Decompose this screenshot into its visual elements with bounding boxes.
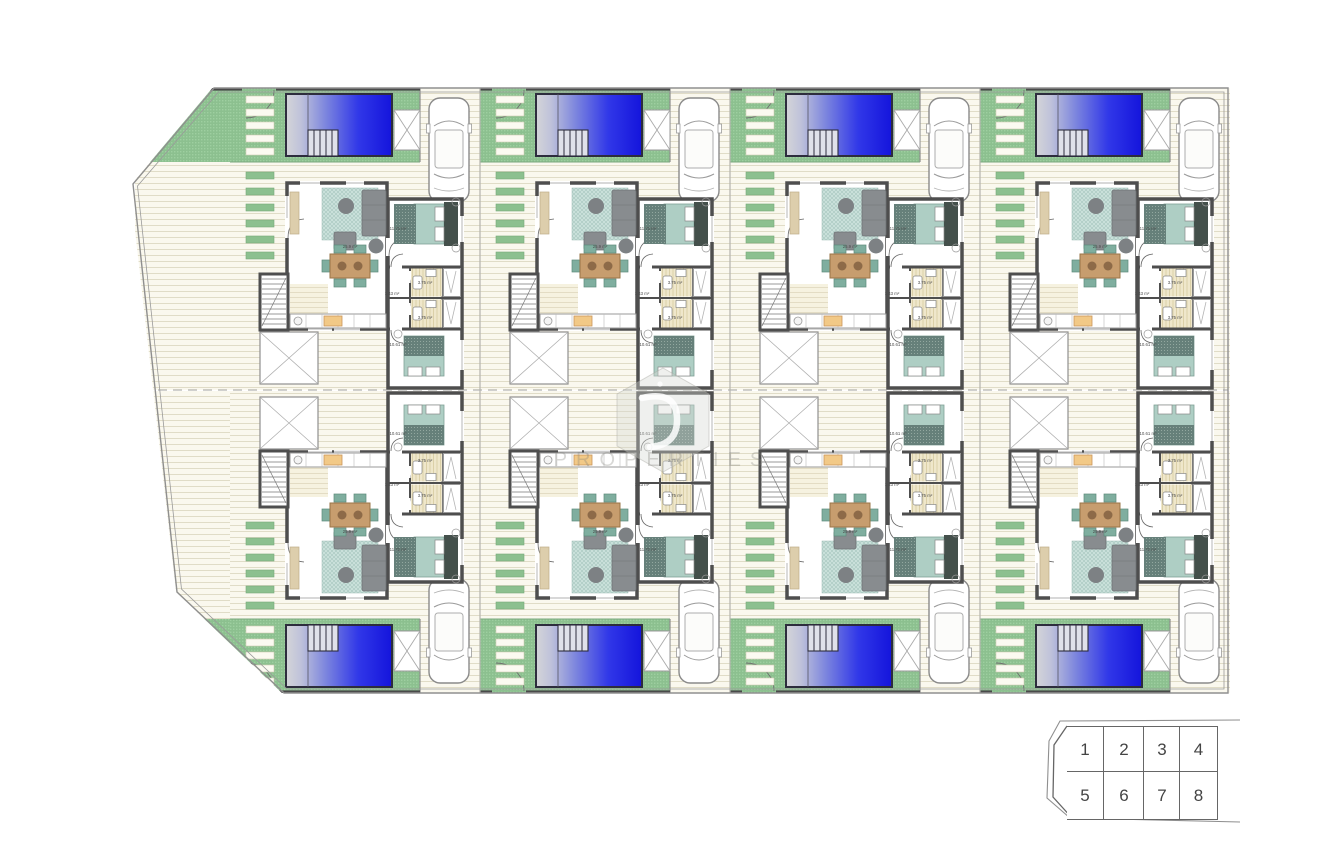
pillow: [426, 405, 440, 414]
pillow: [1185, 560, 1194, 574]
pillow: [1176, 367, 1190, 376]
room-label-hall: 1.43 m²: [1135, 482, 1150, 487]
plot-villa-7: 25.9 m²11.71 m²10.61 m²3.75 m²3.75 m²1.4…: [730, 391, 980, 693]
pool-gate-icon: [644, 631, 670, 671]
room-label-hall: 1.43 m²: [385, 291, 400, 296]
room-label-bathroom_1: 3.75 m²: [418, 493, 433, 498]
room-label-living: 25.9 m²: [1093, 244, 1108, 249]
room-label-bedroom_1: 11.71 m²: [1140, 547, 1157, 552]
room-label-bedroom_2: 10.61 m²: [390, 431, 408, 436]
key-plan-cell-3: 3: [1143, 726, 1181, 773]
key-plan-cell-number: 3: [1157, 740, 1166, 760]
key-plan-cell-number: 5: [1080, 786, 1089, 806]
headboard: [694, 202, 708, 246]
stove: [824, 455, 842, 465]
pillow: [435, 560, 444, 574]
blanket: [904, 336, 944, 356]
bench: [1040, 192, 1049, 234]
bench: [290, 547, 299, 589]
sink: [544, 456, 552, 464]
pool-gate-icon: [394, 631, 420, 671]
key-plan-cell-number: 4: [1194, 740, 1203, 760]
side-table: [619, 528, 634, 543]
room-label-bathroom_2: 3.75 m²: [418, 315, 433, 320]
bathroom-1: [1161, 485, 1211, 513]
pillow: [408, 367, 422, 376]
bathroom-2: [411, 300, 461, 328]
room-label-bathroom_2: 3.75 m²: [668, 458, 683, 463]
pool: [536, 94, 642, 156]
bath-sink: [426, 301, 436, 308]
key-plan-cell-6: 6: [1103, 771, 1145, 820]
pillow: [908, 405, 922, 414]
bath-sink: [926, 474, 936, 481]
blanket: [894, 204, 916, 244]
blanket: [394, 204, 416, 244]
headboard: [944, 535, 958, 579]
key-plan: 12345678: [1046, 716, 1246, 828]
pillow: [935, 207, 944, 221]
sink: [794, 456, 802, 464]
room-label-bathroom_2: 3.75 m²: [1168, 315, 1183, 320]
sink: [294, 317, 302, 325]
dining-table: [1080, 254, 1120, 278]
bedroom-1: [394, 529, 460, 583]
car-icon: [677, 579, 722, 683]
pool-gate-icon: [894, 631, 920, 671]
room-label-bedroom_2: 10.61 m²: [640, 342, 658, 347]
key-plan-cell-1: 1: [1067, 726, 1104, 773]
bath-sink: [926, 270, 936, 277]
corner-plot-ground: [135, 391, 230, 693]
car-icon: [927, 98, 972, 202]
pillow: [1158, 367, 1172, 376]
blanket: [644, 204, 666, 244]
blanket: [654, 425, 694, 445]
bath-sink: [926, 301, 936, 308]
bedroom-1: [644, 198, 710, 252]
dining-table: [580, 503, 620, 527]
bench: [1040, 547, 1049, 589]
car-icon: [427, 98, 472, 202]
pillow: [908, 367, 922, 376]
sofa: [1112, 545, 1136, 591]
stove: [1074, 455, 1092, 465]
blanket: [1154, 425, 1194, 445]
bathroom-1: [661, 485, 711, 513]
pool: [786, 94, 892, 156]
blanket: [1144, 204, 1166, 244]
blanket: [894, 537, 916, 577]
room-label-bathroom_1: 3.75 m²: [668, 280, 683, 285]
headboard: [694, 535, 708, 579]
room-label-hall: 1.43 m²: [385, 482, 400, 487]
blanket: [1154, 336, 1194, 356]
dining-table: [580, 254, 620, 278]
room-label-bedroom_2: 10.61 m²: [390, 342, 408, 347]
blanket: [404, 336, 444, 356]
bath-sink: [426, 474, 436, 481]
key-plan-cell-number: 6: [1119, 786, 1128, 806]
pool: [1036, 625, 1142, 687]
key-plan-cell-number: 1: [1080, 740, 1089, 760]
room-label-bathroom_1: 3.75 m²: [918, 280, 933, 285]
site-plan-canvas: 25.9 m²11.71 m²10.61 m²3.75 m²3.75 m²1.4…: [0, 0, 1320, 859]
pool-gate-icon: [394, 110, 420, 150]
room-label-hall: 1.43 m²: [1135, 291, 1150, 296]
stove: [324, 455, 342, 465]
room-label-living: 25.9 m²: [1093, 529, 1108, 534]
room-label-living: 25.9 m²: [593, 529, 608, 534]
room-label-bathroom_1: 3.75 m²: [668, 493, 683, 498]
key-plan-cell-number: 7: [1157, 786, 1166, 806]
sofa: [612, 545, 636, 591]
pillow: [676, 367, 690, 376]
room-label-bedroom_2: 10.61 m²: [890, 431, 908, 436]
pillow: [658, 367, 672, 376]
pool: [536, 625, 642, 687]
sink: [1044, 456, 1052, 464]
room-label-bedroom_1: 11.71 m²: [890, 226, 907, 231]
bedroom-1: [394, 198, 460, 252]
plot-villa-1: 25.9 m²11.71 m²10.61 m²3.75 m²3.75 m²1.4…: [230, 88, 480, 390]
room-label-bedroom_1: 11.71 m²: [640, 547, 657, 552]
room-label-living: 25.9 m²: [843, 244, 858, 249]
room-label-bathroom_1: 3.75 m²: [418, 280, 433, 285]
room-label-bedroom_2: 10.61 m²: [890, 342, 908, 347]
room-label-bedroom_1: 11.71 m²: [890, 547, 907, 552]
pillow: [935, 560, 944, 574]
room-label-bedroom_1: 11.71 m²: [1140, 226, 1157, 231]
pool-gate-icon: [1144, 110, 1170, 150]
pillow: [435, 227, 444, 241]
room-label-hall: 1.43 m²: [885, 482, 900, 487]
dining-table: [330, 503, 370, 527]
stove: [824, 316, 842, 326]
pillow: [435, 540, 444, 554]
corner-plot-ground: [135, 88, 230, 390]
dining-table: [830, 503, 870, 527]
pillow: [926, 405, 940, 414]
stove: [1074, 316, 1092, 326]
sofa: [862, 545, 886, 591]
side-table: [369, 239, 384, 254]
sink: [544, 317, 552, 325]
sink: [794, 317, 802, 325]
bath-sink: [676, 505, 686, 512]
pillow: [685, 560, 694, 574]
bath-sink: [676, 270, 686, 277]
room-label-bathroom_2: 3.75 m²: [668, 315, 683, 320]
blanket: [394, 537, 416, 577]
side-table: [869, 239, 884, 254]
bench: [290, 192, 299, 234]
key-plan-cell-4: 4: [1179, 726, 1218, 773]
side-table: [869, 528, 884, 543]
headboard: [444, 535, 458, 579]
pillow: [408, 405, 422, 414]
bath-sink: [1176, 301, 1186, 308]
bath-sink: [676, 474, 686, 481]
bath-sink: [426, 505, 436, 512]
pillow: [935, 540, 944, 554]
blanket: [404, 425, 444, 445]
pool-gate-icon: [644, 110, 670, 150]
bathroom-1: [411, 485, 461, 513]
bathroom-2: [911, 300, 961, 328]
side-table: [369, 528, 384, 543]
stove: [324, 316, 342, 326]
car-icon: [927, 579, 972, 683]
side-table: [619, 239, 634, 254]
key-plan-cell-8: 8: [1179, 771, 1218, 820]
bench: [540, 192, 549, 234]
bench: [790, 547, 799, 589]
bath-sink: [1176, 270, 1186, 277]
pillow: [1185, 207, 1194, 221]
room-label-hall: 1.43 m²: [635, 482, 650, 487]
car-icon: [427, 579, 472, 683]
headboard: [944, 202, 958, 246]
bedroom-1: [644, 529, 710, 583]
pool-gate-icon: [1144, 631, 1170, 671]
car-icon: [1177, 98, 1222, 202]
room-label-bedroom_1: 11.71 m²: [390, 226, 407, 231]
bath-sink: [1176, 505, 1186, 512]
room-label-living: 25.9 m²: [593, 244, 608, 249]
sofa: [862, 190, 886, 236]
pool: [286, 625, 392, 687]
plot-villa-6: 25.9 m²11.71 m²10.61 m²3.75 m²3.75 m²1.4…: [480, 391, 730, 693]
pillow: [685, 227, 694, 241]
pillow: [1185, 227, 1194, 241]
plot-villa-5: 25.9 m²11.71 m²10.61 m²3.75 m²3.75 m²1.4…: [230, 391, 480, 693]
pillow: [685, 540, 694, 554]
key-plan-cell-7: 7: [1143, 771, 1181, 820]
room-label-hall: 1.43 m²: [635, 291, 650, 296]
bedroom-1: [894, 529, 960, 583]
room-label-bathroom_1: 3.75 m²: [1168, 280, 1183, 285]
room-label-living: 25.9 m²: [343, 244, 358, 249]
dining-table: [330, 254, 370, 278]
room-label-bedroom_2: 10.61 m²: [1140, 431, 1158, 436]
car-icon: [677, 98, 722, 202]
bedroom-1: [1144, 529, 1210, 583]
bath-sink: [1176, 474, 1186, 481]
room-label-hall: 1.43 m²: [885, 291, 900, 296]
pillow: [658, 405, 672, 414]
room-label-bathroom_2: 3.75 m²: [1168, 458, 1183, 463]
key-plan-cell-number: 8: [1194, 786, 1203, 806]
stove: [574, 316, 592, 326]
blanket: [1144, 537, 1166, 577]
bench: [540, 547, 549, 589]
pillow: [1176, 405, 1190, 414]
plot-villa-4: 25.9 m²11.71 m²10.61 m²3.75 m²3.75 m²1.4…: [980, 88, 1230, 390]
plot-villa-2: 25.9 m²11.71 m²10.61 m²3.75 m²3.75 m²1.4…: [480, 88, 730, 390]
room-label-bedroom_1: 11.71 m²: [640, 226, 657, 231]
key-plan-cells: 12345678: [1046, 716, 1246, 828]
room-label-bedroom_1: 11.71 m²: [390, 547, 407, 552]
sink: [294, 456, 302, 464]
bathroom-2: [661, 300, 711, 328]
bath-sink: [426, 270, 436, 277]
pool: [1036, 94, 1142, 156]
pillow: [1185, 540, 1194, 554]
key-plan-cell-number: 2: [1119, 740, 1128, 760]
bench: [790, 192, 799, 234]
side-table: [1119, 239, 1134, 254]
side-table: [1119, 528, 1134, 543]
blanket: [654, 336, 694, 356]
room-label-living: 25.9 m²: [343, 529, 358, 534]
headboard: [444, 202, 458, 246]
headboard: [1194, 202, 1208, 246]
room-label-bathroom_1: 3.75 m²: [1168, 493, 1183, 498]
key-plan-cell-5: 5: [1067, 771, 1104, 820]
bath-sink: [676, 301, 686, 308]
stove: [574, 455, 592, 465]
room-label-bedroom_2: 10.61 m²: [640, 431, 658, 436]
bedroom-1: [894, 198, 960, 252]
pillow: [685, 207, 694, 221]
pool: [286, 94, 392, 156]
room-label-bathroom_2: 3.75 m²: [418, 458, 433, 463]
bath-sink: [926, 505, 936, 512]
pillow: [676, 405, 690, 414]
bedroom-1: [1144, 198, 1210, 252]
pillow: [935, 227, 944, 241]
sink: [1044, 317, 1052, 325]
bathroom-2: [1161, 300, 1211, 328]
sofa: [362, 190, 386, 236]
pillow: [926, 367, 940, 376]
room-label-living: 25.9 m²: [843, 529, 858, 534]
room-label-bathroom_2: 3.75 m²: [918, 315, 933, 320]
room-label-bathroom_1: 3.75 m²: [918, 493, 933, 498]
pillow: [1158, 405, 1172, 414]
dining-table: [830, 254, 870, 278]
pillow: [426, 367, 440, 376]
car-icon: [1177, 579, 1222, 683]
pillow: [435, 207, 444, 221]
dining-table: [1080, 503, 1120, 527]
plot-villa-8: 25.9 m²11.71 m²10.61 m²3.75 m²3.75 m²1.4…: [980, 391, 1230, 693]
bathroom-1: [911, 485, 961, 513]
headboard: [1194, 535, 1208, 579]
pool: [786, 625, 892, 687]
key-plan-cell-2: 2: [1103, 726, 1145, 773]
blanket: [644, 537, 666, 577]
sofa: [1112, 190, 1136, 236]
pool-gate-icon: [894, 110, 920, 150]
sofa: [612, 190, 636, 236]
room-label-bedroom_2: 10.61 m²: [1140, 342, 1158, 347]
sofa: [362, 545, 386, 591]
plot-villa-3: 25.9 m²11.71 m²10.61 m²3.75 m²3.75 m²1.4…: [730, 88, 980, 390]
blanket: [904, 425, 944, 445]
room-label-bathroom_2: 3.75 m²: [918, 458, 933, 463]
